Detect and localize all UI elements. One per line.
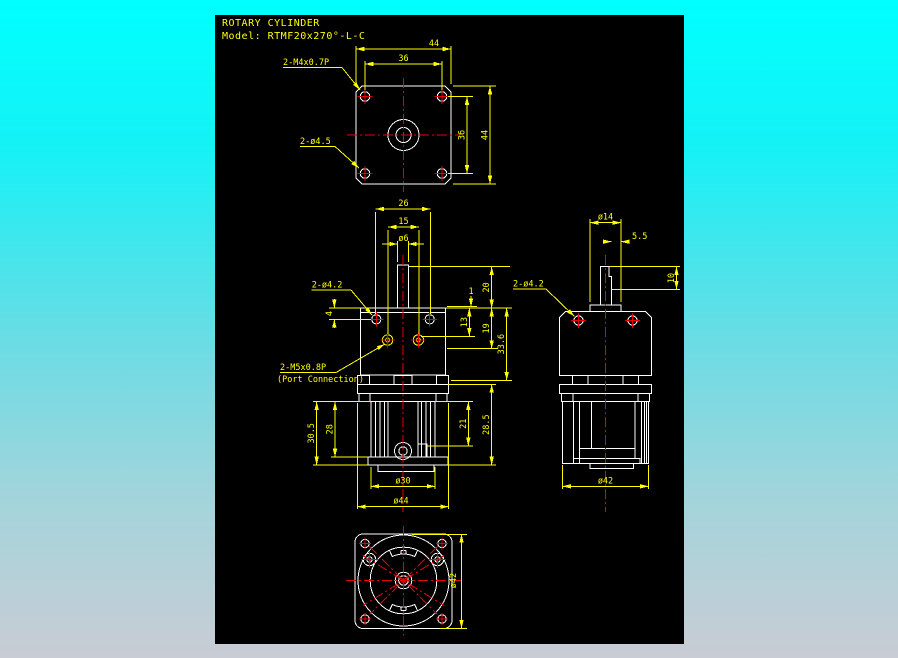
dim-front-cylinder-height: 21 <box>459 419 469 429</box>
dim-front-shaft-height: 20 <box>482 282 492 292</box>
label-drill-holes-45: 2-ø4.5 <box>300 137 331 147</box>
dim-top-width: 44 <box>429 39 439 49</box>
label-drill-holes-42-side: 2-ø4.2 <box>513 280 544 290</box>
dim-front-bore-depth: 13 <box>460 317 470 327</box>
dim-front-port-span: 15 <box>398 217 408 227</box>
top-view: 44 36 36 44 2-M4x0.7P 2-ø4.5 <box>283 39 496 192</box>
dim-front-hole-offset: 4 <box>325 311 335 316</box>
dim-front-hole-span: 26 <box>398 199 408 209</box>
side-view-centerlines <box>571 255 640 512</box>
label-drill-holes-42-front: 2-ø4.2 <box>312 281 343 291</box>
front-view-dimensions <box>280 209 512 509</box>
dim-front-plate-step: 1 <box>468 287 473 297</box>
label-port-note: (Port Connection) <box>277 375 364 385</box>
dim-side-hub-dia: ø14 <box>598 213 613 223</box>
dim-front-lower-height: 30.5 <box>307 423 317 443</box>
dim-side-step: 5.5 <box>632 232 647 242</box>
dim-top-height: 44 <box>481 130 491 140</box>
dim-front-lower-total: 28.5 <box>482 414 492 434</box>
bottom-view: ø42 <box>346 526 467 636</box>
drawing-title: ROTARY CYLINDER <box>222 18 320 29</box>
cad-drawing-canvas: ROTARY CYLINDER Model: RTMF20x270°-L-C <box>215 15 684 644</box>
top-view-centerlines <box>347 78 460 192</box>
dim-front-fin-height: 28 <box>326 424 336 434</box>
dim-side-thread-len: 10 <box>667 273 677 283</box>
side-view: ø14 5.5 10 ø42 2-ø4.2 <box>513 213 680 512</box>
dim-front-upper-height: 33.6 <box>497 334 507 354</box>
label-tap-holes: 2-M4x0.7P <box>283 58 329 68</box>
dim-front-body-height: 19 <box>482 323 492 333</box>
label-port-thread: 2-M5x0.8P <box>280 363 326 373</box>
dim-side-body-dia: ø42 <box>598 476 613 486</box>
bottom-view-centerlines <box>346 526 461 636</box>
dim-front-base-dia: ø30 <box>395 476 410 486</box>
drawing-model: Model: RTMF20x270°-L-C <box>222 31 365 42</box>
dim-front-shaft-dia: ø6 <box>398 234 408 244</box>
dim-top-bolt-span-v: 36 <box>458 130 468 140</box>
dim-bottom-body-dia: ø42 <box>449 573 459 588</box>
dim-front-flange-dia: ø44 <box>393 497 408 507</box>
cad-drawing: ROTARY CYLINDER Model: RTMF20x270°-L-C <box>215 15 684 644</box>
front-view: 26 15 ø6 1 20 13 19 33.6 4 30.5 28 21 28… <box>277 199 512 512</box>
front-view-centerlines <box>369 255 437 512</box>
dim-top-bolt-span-h: 36 <box>398 54 408 64</box>
title-block: ROTARY CYLINDER Model: RTMF20x270°-L-C <box>222 18 365 42</box>
